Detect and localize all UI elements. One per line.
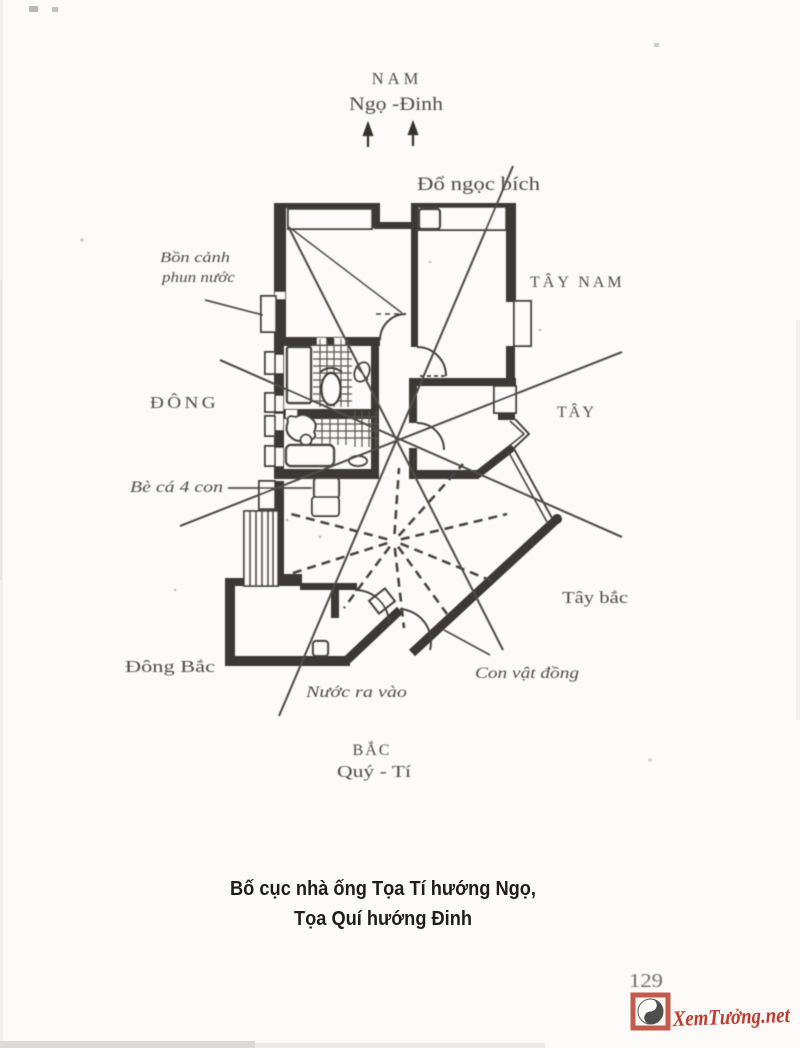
svg-text:Con vật đồng: Con vật đồng bbox=[475, 665, 579, 682]
svg-text:Tọa Quí hướng Đinh: Tọa Quí hướng Đinh bbox=[294, 908, 472, 930]
svg-text:XemTưởng.net: XemTưởng.net bbox=[671, 1002, 790, 1031]
svg-text:Bố cục nhà ống Tọa Tí hướng Ng: Bố cục nhà ống Tọa Tí hướng Ngọ, bbox=[230, 878, 536, 900]
svg-text:TÂY NAM: TÂY NAM bbox=[530, 272, 625, 291]
svg-text:Bồn cảnh: Bồn cảnh bbox=[160, 250, 230, 266]
svg-text:Tây bắc: Tây bắc bbox=[562, 588, 629, 607]
svg-text:NAM: NAM bbox=[372, 69, 423, 88]
svg-text:ĐÔNG: ĐÔNG bbox=[150, 393, 219, 412]
svg-text:BẮC: BẮC bbox=[353, 740, 392, 759]
svg-text:Đổ ngọc bích: Đổ ngọc bích bbox=[417, 174, 541, 195]
svg-text:Nước ra vào: Nước ra vào bbox=[305, 684, 407, 701]
svg-text:Bè cá 4 con: Bè cá 4 con bbox=[130, 479, 223, 496]
svg-text:Ngọ -Đinh: Ngọ -Đinh bbox=[349, 94, 444, 115]
svg-text:129: 129 bbox=[629, 970, 663, 992]
svg-text:phun nước: phun nước bbox=[161, 270, 236, 286]
svg-text:Đông Bắc: Đông Bắc bbox=[125, 657, 216, 676]
svg-text:Quý - Tí: Quý - Tí bbox=[337, 762, 411, 781]
svg-text:TÂY: TÂY bbox=[557, 402, 596, 421]
